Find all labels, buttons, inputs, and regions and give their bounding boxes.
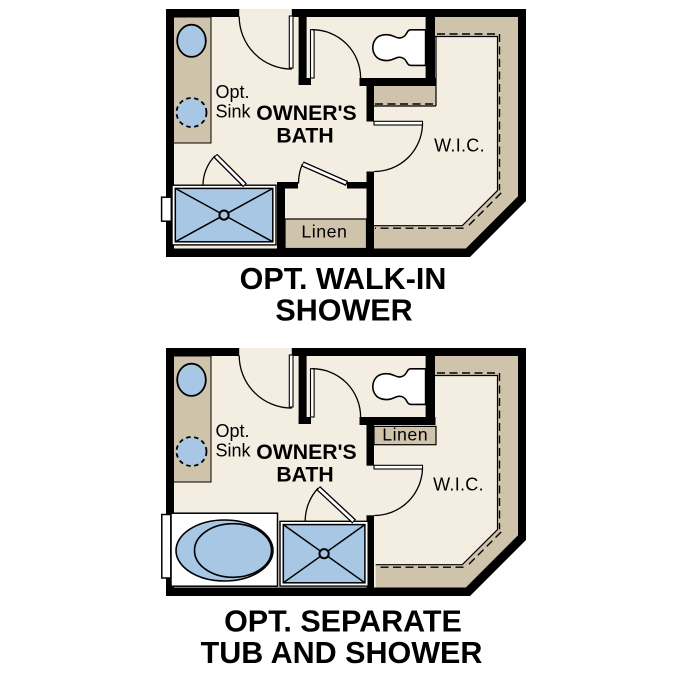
svg-text:Linen: Linen [382, 425, 428, 445]
svg-text:W.I.C.: W.I.C. [433, 474, 484, 494]
svg-text:OPT. SEPARATE: OPT. SEPARATE [224, 604, 462, 638]
svg-text:BATH: BATH [276, 463, 333, 486]
svg-text:OWNER'S: OWNER'S [256, 441, 356, 464]
svg-text:Linen: Linen [301, 222, 347, 242]
svg-text:W.I.C.: W.I.C. [434, 135, 485, 155]
svg-text:Sink: Sink [216, 102, 252, 122]
svg-text:TUB AND SHOWER: TUB AND SHOWER [201, 636, 483, 670]
svg-text:OWNER'S: OWNER'S [256, 102, 356, 125]
svg-text:BATH: BATH [276, 124, 333, 147]
svg-text:SHOWER: SHOWER [275, 294, 412, 328]
svg-text:Sink: Sink [216, 441, 252, 461]
svg-text:OPT. WALK-IN: OPT. WALK-IN [240, 262, 447, 296]
svg-text:Opt.: Opt. [216, 82, 250, 102]
svg-text:Opt.: Opt. [216, 421, 250, 441]
